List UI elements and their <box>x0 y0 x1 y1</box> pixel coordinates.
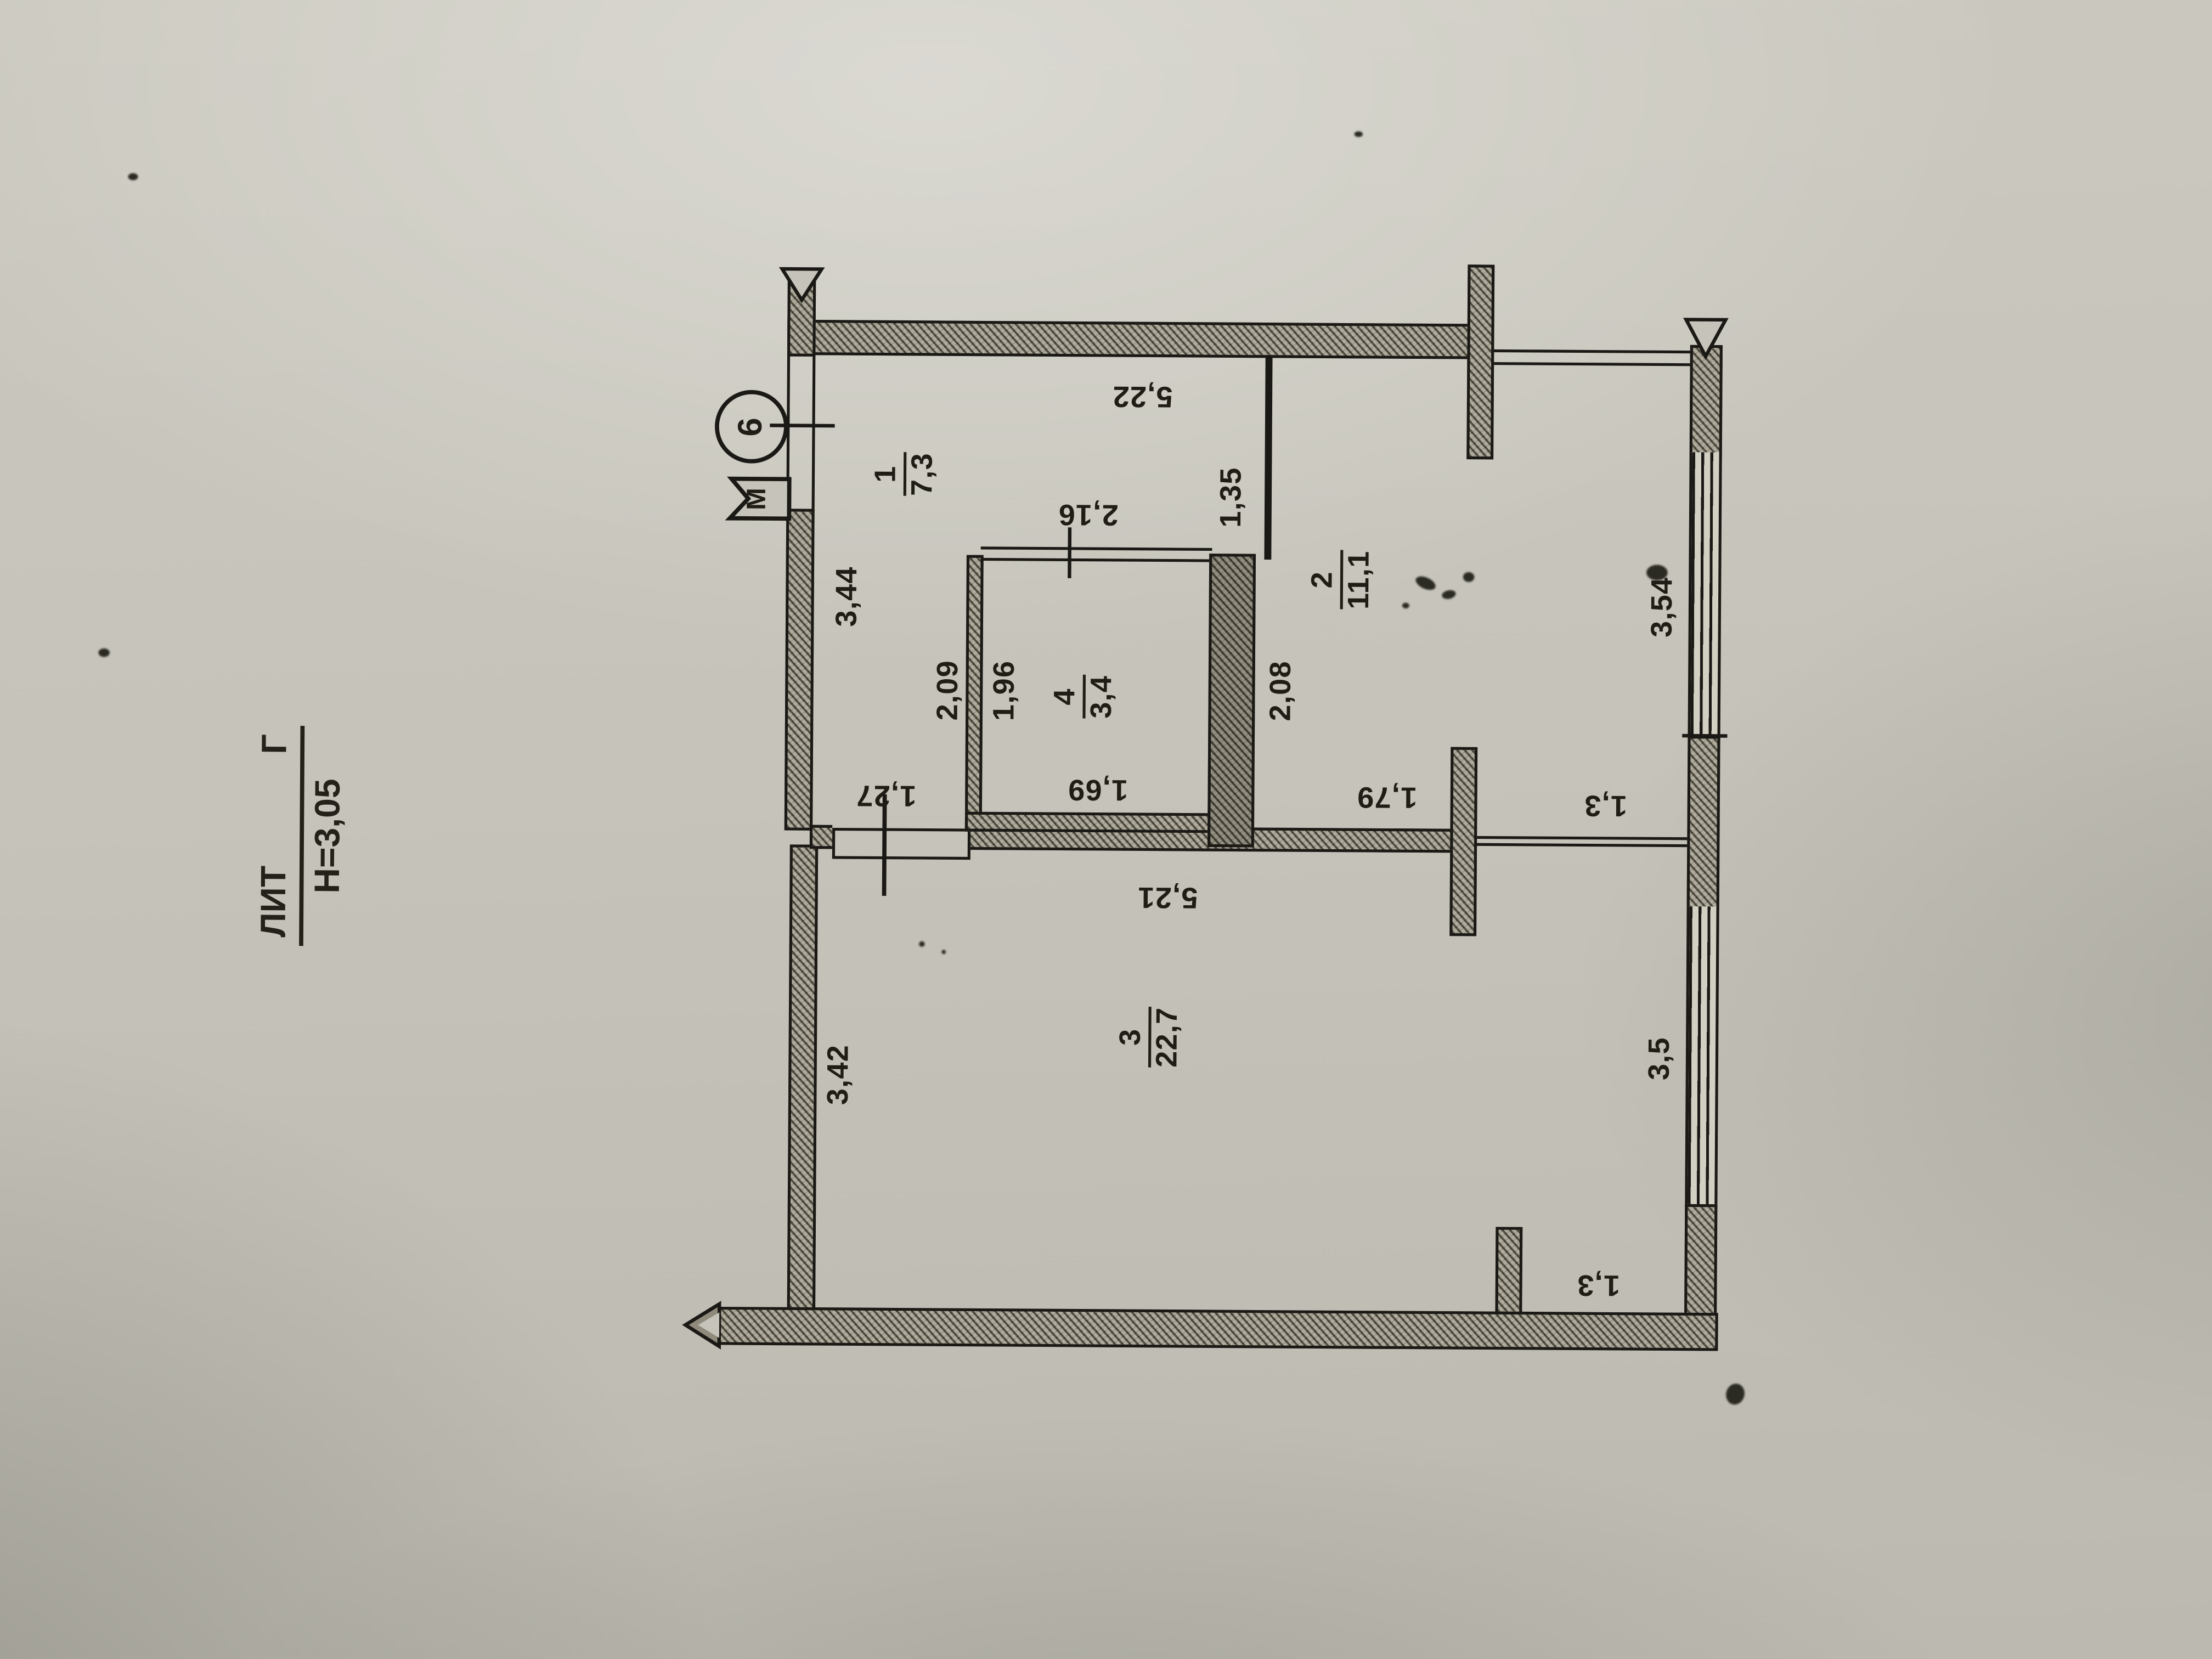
building-letter: Г <box>255 734 296 754</box>
flue-letter: М <box>744 487 772 510</box>
wall-right-pier-middle <box>1687 736 1720 911</box>
paper-speck <box>941 950 946 954</box>
dim-2-16: 2,16 <box>1058 498 1119 529</box>
ceiling-height-note: Н=3,05 <box>303 726 350 946</box>
ink-smudge <box>1724 1381 1747 1407</box>
dim-1-3-lower: 1,3 <box>1577 1268 1620 1300</box>
dim-3-42: 3,42 <box>823 1045 855 1105</box>
ink-smudge <box>1402 603 1409 608</box>
dim-1-35: 1,35 <box>1216 467 1248 528</box>
wall-right-pier-top <box>1690 345 1723 458</box>
dim-2-08: 2,08 <box>1266 661 1297 721</box>
wall-room4-top <box>981 546 1212 562</box>
dim-5-21: 5,21 <box>1137 881 1198 912</box>
wall-stub-top-right <box>1466 264 1494 459</box>
paper-speck <box>98 648 110 657</box>
wall-stub-bottom-right <box>1495 1227 1522 1314</box>
wall-bottom <box>716 1307 1718 1351</box>
paper-sheet: М 5,221,3517,363,442,162,091,9643,41,692… <box>0 0 2212 1659</box>
wall-top <box>787 320 1470 359</box>
dimension-labels-layer: 5,221,3517,363,442,162,091,9643,41,692,0… <box>5 0 2212 7</box>
paper-speck <box>919 941 924 947</box>
wall-room4-right-shaft <box>1207 554 1256 847</box>
wall-stub-cross <box>1449 747 1477 936</box>
wall-room4-left <box>965 555 984 832</box>
wall-top-thin-right <box>1487 349 1693 366</box>
title-block: ЛИТ Г Н=3,05 <box>254 726 350 946</box>
dim-3-44: 3,44 <box>832 566 864 627</box>
wall-left-upper-thin <box>786 351 815 511</box>
dim-5-22: 5,22 <box>1112 380 1173 411</box>
ink-smudge <box>1463 572 1475 582</box>
wall-left-middle <box>785 509 815 831</box>
dim-1-27: 1,27 <box>856 778 917 810</box>
wall-break-arrow-icon <box>685 1304 719 1346</box>
room-1-label: 17,3 <box>871 452 939 496</box>
wall-left-lower <box>787 844 819 1310</box>
dim-1-3-upper: 1,3 <box>1584 789 1627 820</box>
floor-plan-drawing: М 5,221,3517,363,442,162,091,9643,41,692… <box>0 0 2212 1659</box>
window-right-lower <box>1685 906 1719 1209</box>
dim-1-79: 1,79 <box>1357 780 1418 811</box>
ink-smudge <box>1646 565 1668 580</box>
room-4-label: 43,4 <box>1050 675 1118 719</box>
title-block-top-row: ЛИТ Г <box>254 726 304 946</box>
dim-1-69: 1,69 <box>1068 773 1128 804</box>
dim-2-09: 2,09 <box>933 660 964 721</box>
paper-speck <box>128 173 138 180</box>
ink-smudge <box>1441 589 1457 600</box>
dim-3-5: 3,5 <box>1645 1037 1676 1080</box>
ink-smudge <box>1414 574 1438 593</box>
wall-interior-thin-right <box>1476 836 1688 847</box>
window-right-upper <box>1688 452 1722 740</box>
dim-1-96: 1,96 <box>990 661 1021 721</box>
room-2-label: 211,1 <box>1307 550 1375 610</box>
paper-speck <box>1355 131 1363 137</box>
wall-room1-room2-divider <box>1264 357 1272 560</box>
photo-of-floor-plan: М 5,221,3517,363,442,162,091,9643,41,692… <box>0 0 2212 1659</box>
dim-3-54: 3,54 <box>1647 577 1679 637</box>
wall-stub-top-left <box>787 274 816 356</box>
room-3-label: 322,7 <box>1116 1007 1184 1068</box>
door-threshold <box>832 828 970 860</box>
apartment-number-badge: 6 <box>715 390 789 464</box>
lit-label: ЛИТ <box>254 866 295 938</box>
